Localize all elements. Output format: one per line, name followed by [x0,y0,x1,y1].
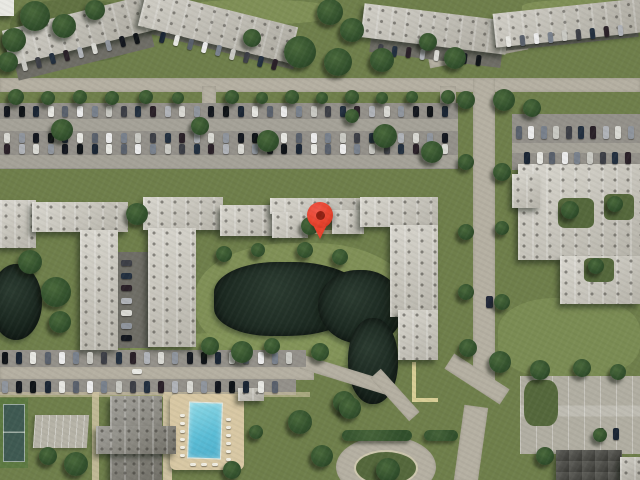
apartment-wing-south [80,230,118,350]
parked-car [533,33,539,44]
parked-car [158,352,164,364]
tree-canopy [216,246,232,262]
parked-car [16,352,22,364]
parked-car [172,381,178,393]
parked-car [257,55,265,67]
parked-car [33,144,39,154]
parked-car [179,144,185,154]
tree-canopy [285,90,299,104]
tree-canopy [251,243,265,257]
parked-car [281,144,287,154]
tree-canopy [523,99,541,117]
parked-car [187,352,193,364]
tree-canopy [105,91,119,105]
parked-car [45,381,51,393]
tree-canopy [288,410,312,434]
parked-car [369,106,375,117]
parked-car [223,133,229,143]
tree-canopy [607,196,623,212]
parked-car [48,144,54,154]
parked-car [589,27,595,38]
parked-car [172,352,178,364]
parked-car [194,144,200,154]
road-south [0,366,314,380]
parked-car [121,298,132,304]
parked-car [158,381,164,393]
parked-car [628,126,634,139]
parked-car [208,144,214,154]
parked-car [30,352,36,364]
parked-car [587,152,593,164]
tree-canopy [73,90,87,104]
tree-canopy [370,48,394,72]
tree-canopy [284,36,316,68]
parked-car [340,144,346,154]
parked-car [354,133,360,143]
parked-car [62,106,68,117]
parked-car [19,106,25,117]
tree-canopy [64,452,88,476]
parked-car [116,352,122,364]
parked-car [226,434,231,437]
parked-car [505,36,511,47]
tree-canopy [493,163,511,181]
tree-canopy [339,397,361,419]
parked-car [187,38,195,50]
tree-canopy [340,18,364,42]
parked-car [150,133,156,143]
tree-canopy [459,339,477,357]
parked-car [575,29,581,40]
tree-canopy [172,92,184,104]
tree-canopy [345,109,359,123]
parked-car [16,381,22,393]
hedge-row [342,430,412,441]
parked-car [116,381,122,393]
parked-car [325,144,331,154]
parked-car [258,352,264,364]
tree-canopy [332,249,348,265]
parked-car [413,133,419,143]
parked-car [180,414,185,417]
parked-car [87,381,93,393]
parked-car [286,352,292,364]
road-east [473,78,495,384]
parked-car [398,106,404,117]
parked-car [223,144,229,154]
tree-canopy [421,141,443,163]
tennis-court-surface [3,404,25,462]
parked-car [208,133,214,143]
parked-car [180,430,185,433]
road-north [0,78,640,92]
parked-car [613,428,619,440]
tree-canopy [311,343,329,361]
tree-canopy [317,0,343,25]
swimming-pool [187,401,223,459]
parked-car [135,106,141,117]
parked-car [311,106,317,117]
tree-canopy [20,1,50,31]
tree-canopy [316,92,328,104]
parked-car [272,381,278,393]
parked-car [413,106,419,117]
parked-car [212,463,218,466]
parked-car [369,144,375,154]
parked-car [106,144,112,154]
tree-canopy [231,341,253,363]
parking-aisle [0,155,458,168]
parked-car [625,152,631,164]
parked-car [549,152,555,164]
parked-car [547,32,553,43]
parked-car [578,126,584,139]
tree-canopy [530,360,550,380]
parked-car [130,381,136,393]
building-southeast [556,450,622,480]
parked-car [150,106,156,117]
tree-canopy [376,92,388,104]
parked-car [201,381,207,393]
parked-car [121,335,132,341]
tree-canopy [225,90,239,104]
tree-canopy [406,91,418,103]
tree-canopy [126,203,148,225]
tree-canopy [610,364,626,380]
parked-car [73,352,79,364]
tree-canopy [593,428,607,442]
pin-center-dot [316,211,325,220]
parked-car [180,422,185,425]
parked-car [537,152,543,164]
parked-car [354,144,360,154]
pond-west [0,264,42,340]
parked-car [528,126,534,139]
tree-canopy [458,284,474,300]
map-pin[interactable] [303,202,337,246]
parked-car [590,126,596,139]
parked-car [150,144,156,154]
tree-canopy [493,89,515,111]
parked-car [541,126,547,139]
parked-car [180,446,185,449]
tree-canopy [51,119,73,141]
building-southeast-annex [620,457,640,480]
parked-car [165,133,171,143]
parked-car [179,133,185,143]
tree-canopy [191,117,209,135]
parked-car [165,144,171,154]
tree-canopy [458,224,474,240]
parked-car [617,25,623,36]
parked-car [524,152,530,164]
parked-car [121,285,132,291]
parked-car [267,106,273,117]
parked-car [442,106,448,117]
parked-car [398,133,404,143]
apartment-wing-south [398,310,438,360]
parked-car [296,144,302,154]
parked-car [4,106,10,117]
tree-canopy [139,90,153,104]
parked-car [180,438,185,441]
parked-car [2,381,8,393]
parked-car [311,133,317,143]
parked-car [600,152,606,164]
tree-canopy [573,359,591,377]
tree-canopy [588,258,604,274]
tree-canopy [223,461,241,479]
parked-car [87,352,93,364]
tree-canopy [494,294,510,310]
parked-car [59,381,65,393]
parked-car [121,144,127,154]
tree-canopy [495,221,509,235]
tree-canopy [419,33,437,51]
tree-canopy [536,447,554,465]
apartment-wing [360,197,438,227]
parked-car [281,106,287,117]
parked-car [144,381,150,393]
tree-canopy [41,91,55,105]
apartment-wing [143,197,223,230]
tree-canopy [2,28,26,52]
parked-car [238,144,244,154]
parked-car [121,133,127,143]
tree-canopy [458,154,474,170]
parked-car [208,106,214,117]
parked-car [106,106,112,117]
parked-car [427,106,433,117]
parked-car [101,352,107,364]
parked-car [130,352,136,364]
parked-car [229,48,237,60]
tree-canopy [256,92,268,104]
parked-car [562,152,568,164]
tree-canopy [489,351,511,373]
parked-car [73,381,79,393]
parked-car [106,133,112,143]
parked-car [516,126,522,139]
tree-canopy [345,90,359,104]
parked-car [48,106,54,117]
tree-canopy [457,91,475,109]
parked-car [238,106,244,117]
parked-car [121,260,132,266]
tree-canopy [264,338,280,354]
tree-canopy [52,14,76,38]
apartment-wing-south [390,225,438,317]
parked-car [165,106,171,117]
parked-car [33,133,39,143]
apartment-wing [0,200,36,248]
parked-car [615,126,621,139]
parked-car [4,144,10,154]
tree-canopy [18,250,42,274]
parked-car [553,126,559,139]
tree-canopy [243,29,261,47]
parked-car [135,133,141,143]
parked-car [92,144,98,154]
tree-canopy [441,90,455,104]
parked-car [4,133,10,143]
parked-car [77,106,83,117]
tree-canopy [376,458,400,480]
parked-car [215,381,221,393]
parked-car [92,106,98,117]
parked-car [281,133,287,143]
parked-car [442,133,448,143]
tree-canopy [373,124,397,148]
parked-car [296,133,302,143]
tree-canopy [249,425,263,439]
hedge-row [424,430,458,441]
parked-car [384,106,390,117]
parked-car [519,34,525,45]
parked-car [77,133,83,143]
parked-car [226,426,231,429]
parked-car [62,144,68,154]
parking-tree-island [524,380,558,426]
parked-car [201,463,207,466]
parked-car [190,463,196,466]
parked-car [215,352,221,364]
apartment-wing-south [148,228,196,347]
tree-canopy [39,447,57,465]
parked-car [238,133,244,143]
parked-car [561,30,567,41]
parked-car [77,144,83,154]
parked-car [243,381,249,393]
parked-car [325,133,331,143]
parked-car [144,352,150,364]
tree-canopy [444,47,466,69]
satellite-map[interactable] [0,0,640,480]
tree-canopy [201,337,219,355]
parked-car [92,133,98,143]
tree-canopy [324,48,352,76]
parked-car [121,323,132,329]
parked-car [226,442,231,445]
parked-car [311,144,317,154]
parked-car [566,126,572,139]
parked-car [486,296,493,308]
parked-car [121,106,127,117]
tree-canopy [41,277,71,307]
parked-car [45,352,51,364]
parked-car [179,106,185,117]
parked-car [258,381,264,393]
parked-car [574,152,580,164]
parked-car [194,106,200,117]
parked-car [252,106,258,117]
walkway-yellow-curb [412,362,416,402]
parked-car [226,418,231,421]
parked-car [340,133,346,143]
parked-car [180,454,185,457]
apartment-wing [32,202,128,232]
shuffleboard-courts [33,415,89,448]
parked-car [296,106,302,117]
parked-car [398,144,404,154]
parked-car [223,106,229,117]
parked-car [121,310,132,316]
parked-car [603,26,609,37]
parked-car [30,381,36,393]
parked-car [135,144,141,154]
parked-car [229,381,235,393]
tree-canopy [49,311,71,333]
parked-car [19,133,25,143]
road-south-exit [454,405,488,480]
parked-car [101,381,107,393]
parked-car [325,106,331,117]
building-corner-northwest [0,0,14,16]
parked-car [132,369,142,374]
parked-car [121,273,132,279]
parked-car [33,106,39,117]
parked-car [2,352,8,364]
tree-canopy [257,130,279,152]
tree-canopy [561,201,579,219]
parked-car [59,352,65,364]
parked-car [19,144,25,154]
tree-canopy [311,445,333,467]
tree-canopy [85,0,105,20]
parked-car [187,381,193,393]
parked-car [226,450,231,453]
tree-canopy [8,89,24,105]
parked-car [603,126,609,139]
parked-car [612,152,618,164]
apartment-building-east-stub [512,174,540,208]
walkway-yellow-curb [412,398,438,402]
clubhouse-roof-wing [96,426,176,454]
parked-car [413,144,419,154]
